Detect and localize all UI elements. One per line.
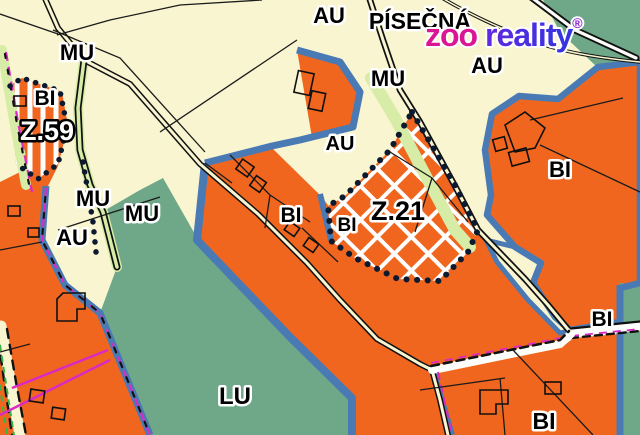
zone-label-bi: BI (281, 204, 302, 227)
zone-label-bi: BI (549, 157, 571, 182)
zone-label-au: AU (56, 225, 88, 250)
site-label-z21: Z.21 (371, 196, 425, 226)
map-viewport[interactable]: PÍSEČNÁ AU MU MU AU BI Z.59 MU MU AU AU … (0, 0, 640, 435)
zone-label-mu: MU (60, 40, 94, 65)
zone-label-mu: MU (76, 186, 110, 211)
zone-label-lu: LU (219, 383, 251, 410)
zone-label-mu: MU (371, 66, 405, 91)
zone-label-au: AU (313, 3, 345, 28)
zone-label-bi: BI (338, 215, 357, 236)
zoo-reality-logo: zoo reality® (425, 15, 583, 53)
zoning-map: PÍSEČNÁ AU MU MU AU BI Z.59 MU MU AU AU … (0, 0, 640, 435)
zone-label-au: AU (471, 53, 503, 78)
zone-label-bi: BI (592, 308, 613, 331)
zone-label-mu: MU (125, 201, 159, 226)
zone-label-bi: BI (35, 87, 56, 110)
zone-label-bi: BI (533, 408, 556, 434)
logo-zoo-text: zoo (425, 17, 485, 53)
logo-reality-text: reality (485, 17, 573, 53)
zone-label-au: AU (326, 133, 355, 155)
site-label-z59: Z.59 (20, 116, 74, 146)
